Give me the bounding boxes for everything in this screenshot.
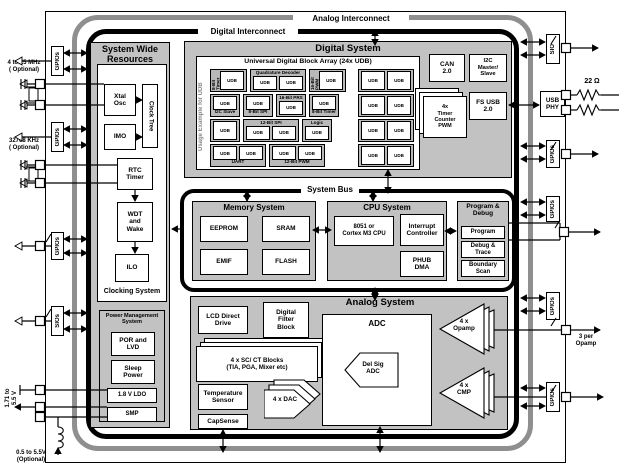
udb-group-16-bit-pwm: 16-Bit PWMUDB <box>309 69 346 92</box>
power-management-title: Power Management System <box>99 313 165 325</box>
port-label: GPIOs <box>550 145 556 163</box>
port-label: GPIOs <box>55 128 61 146</box>
analog-interconnect-label: Analog Interconnect <box>293 13 409 24</box>
imo-block: IMO <box>104 124 136 150</box>
udb-group-label: 8-Bit Timer <box>312 110 336 115</box>
interrupt-controller-block: Interrupt Controller <box>400 214 444 246</box>
sc-ct-blocks: 4 x SC/ CT Blocks (TIA, PGA, Mixer etc) <box>196 346 318 382</box>
port-label: GPIOs <box>550 388 556 406</box>
ldo-block: 1.8 V LDO <box>107 388 157 403</box>
udb-group: UDB <box>210 119 240 142</box>
udb-group: UDBUDB <box>358 144 414 167</box>
sram-block: SRAM <box>262 216 310 242</box>
udb-cell: UDB <box>279 76 303 90</box>
udb-group-logic: LogicUDB <box>302 119 332 142</box>
program-debug-title: Program & Debug <box>457 203 509 217</box>
clock-tree-block: Clock Tree <box>142 84 158 148</box>
psoc-block-diagram: Analog Interconnect Digital Interconnect… <box>0 0 623 471</box>
port-gpios-right: GPIOs <box>546 292 560 320</box>
i2c-block: I2C Master/ Slave <box>469 54 507 82</box>
memory-system-title: Memory System <box>192 204 316 213</box>
lcd-direct-drive-block: LCD Direct Drive <box>198 306 248 334</box>
digital-interconnect-label: Digital Interconnect <box>198 26 298 37</box>
udb-cell: UDB <box>272 126 296 140</box>
capsense-block: CapSense <box>198 414 248 429</box>
sleep-power-block: Sleep Power <box>111 360 155 384</box>
udb-cell: UDB <box>239 146 263 160</box>
udb-cell: UDB <box>361 71 385 90</box>
cpu-core-block: 8051 or Cortex M3 CPU <box>334 216 394 246</box>
udb-group-label: 8-Bit SPI <box>246 110 270 115</box>
digital-system-title: Digital System <box>184 44 512 54</box>
wdt-wake-block: WDT and Wake <box>117 202 153 242</box>
port-gpios-left: GPIOs <box>51 46 64 76</box>
port-label: SIOs <box>55 314 61 328</box>
udb-cell: UDB <box>319 71 343 90</box>
usb-phy-block: USB PHY <box>540 91 565 117</box>
udb-cell: UDB <box>361 121 385 140</box>
udb-group-8-bit-spi: UDB8-Bit SPI <box>243 94 273 117</box>
udb-cell: UDB <box>220 71 244 90</box>
cmp-label: 4 x CMP <box>444 382 484 396</box>
port-label: GPIOs <box>550 297 556 315</box>
udb-cell: UDB <box>253 76 277 90</box>
xtal-osc-block: Xtal Osc <box>104 84 136 116</box>
debug-trace-block: Debug & Trace <box>461 241 505 258</box>
udb-group-16-bit-prs: 16-Bit PRSUDB <box>276 94 306 117</box>
rtc-timer-block: RTC Timer <box>117 158 153 190</box>
port-gpios-right: GPIOs <box>546 196 560 222</box>
system-bus-label: System Bus <box>301 184 359 195</box>
phub-dma-block: PHUB DMA <box>400 251 444 277</box>
udb-cell: UDB <box>246 96 270 110</box>
udb-group-label: 16-Bit PWM <box>312 71 319 90</box>
udb-group-8-bit-timer: 8-Bit TimerUDB <box>210 69 247 92</box>
analog-system-title: Analog System <box>320 298 440 308</box>
xtal-high-label: 4 to 25 MHz ( Optional) <box>2 60 46 74</box>
port-label: GPIOs <box>55 52 61 70</box>
udb-group-uart: UDBUDBUART <box>210 144 266 167</box>
udb-array-title: Universal Digital Block Array (24x UDB) <box>198 58 418 65</box>
udb-group-quadrature-decoder: Quadrature DecoderUDBUDB <box>250 69 306 92</box>
udb-group-label: 12-Bit PWM <box>272 160 322 165</box>
udb-cell: UDB <box>387 96 411 115</box>
dac-label: 4 x DAC <box>264 396 306 403</box>
clocking-system-caption: Clocking System <box>97 288 167 296</box>
udb-cell: UDB <box>213 96 237 110</box>
timer-counter-pwm-block: 4x Timer Counter PWM <box>423 96 467 138</box>
clock-tree-label: Clock Tree <box>147 101 154 131</box>
udb-group-label: UART <box>213 160 263 165</box>
eeprom-block: EEPROM <box>200 216 248 242</box>
udb-group: UDBUDB <box>358 94 414 117</box>
boost-supply-label: 0.5 to 5.5V (Optional) <box>2 450 60 464</box>
ilo-block: ILO <box>115 254 149 282</box>
udb-cell: UDB <box>387 146 411 165</box>
udb-cell: UDB <box>279 101 303 115</box>
udb-cell: UDB <box>387 121 411 140</box>
port-label: GPIOs <box>550 200 556 218</box>
system-wide-resources-title: System Wide Resources <box>90 45 170 65</box>
emif-block: EMIF <box>200 249 248 275</box>
udb-cell: UDB <box>305 126 329 140</box>
port-sios-left: SIOs <box>51 306 64 336</box>
udb-group-i2c-slave: UDBI2C Slave <box>210 94 240 117</box>
port-gpios-left: GPIOs <box>51 232 64 260</box>
port-gpios-right: GPIOs <box>546 140 560 168</box>
udb-array-grid: 8-Bit TimerUDBQuadrature DecoderUDBUDB16… <box>210 69 414 167</box>
udb-usage-side-label: Usage Example for UDB <box>198 68 208 166</box>
port-sio-right: SIO <box>546 34 560 64</box>
opamp-label: 4 x Opamp <box>444 318 484 332</box>
udb-group-label: I2C Slave <box>213 110 237 115</box>
can-block: CAN 2.0 <box>429 54 465 82</box>
udb-cell: UDB <box>272 146 296 160</box>
udb-group: UDBUDB <box>358 69 414 92</box>
fs-usb-block: FS USB 2.0 <box>469 92 507 120</box>
udb-cell: UDB <box>312 96 336 110</box>
xtal-low-label: 32768 KHz ( Optional) <box>2 138 46 152</box>
udb-group-12-bit-spi: 12-Bit SPIUDBUDB <box>243 119 299 142</box>
program-block: Program <box>461 226 505 239</box>
udb-cell: UDB <box>213 121 237 140</box>
port-label: GPIOs <box>55 237 61 255</box>
boundary-scan-block: Boundary Scan <box>461 260 505 277</box>
udb-group-label: 8-Bit Timer <box>213 71 220 90</box>
port-label: SIO <box>550 44 556 54</box>
udb-cell: UDB <box>361 96 385 115</box>
udb-cell: UDB <box>246 126 270 140</box>
udb-group: UDBUDB <box>358 119 414 142</box>
udb-cell: UDB <box>213 146 237 160</box>
cpu-system-title: CPU System <box>327 204 447 213</box>
udb-cell: UDB <box>298 146 322 160</box>
udb-group-8-bit-timer: UDB8-Bit Timer <box>309 94 339 117</box>
udb-group-12-bit-pwm: UDBUDB12-Bit PWM <box>269 144 325 167</box>
por-lvd-block: POR and LVD <box>111 332 155 356</box>
delsig-adc-label: Del Sig ADC <box>352 361 394 375</box>
port-gpios-left: GPIOs <box>51 122 64 152</box>
opamp-note-label: 3 per Opamp <box>566 334 606 348</box>
usb-resistor-label: 22 Ω <box>578 78 606 86</box>
smp-block: SMP <box>107 407 157 422</box>
temperature-sensor-block: Temperature Sensor <box>198 384 248 410</box>
digital-filter-block: Digital Filter Block <box>263 302 309 338</box>
flash-block: FLASH <box>262 249 310 275</box>
port-gpios-right: GPIOs <box>546 382 560 412</box>
udb-cell: UDB <box>361 146 385 165</box>
supply-range-label: 1.71 to 5.5 V <box>5 376 23 420</box>
udb-cell: UDB <box>387 71 411 90</box>
adc-label: ADC <box>322 320 432 329</box>
